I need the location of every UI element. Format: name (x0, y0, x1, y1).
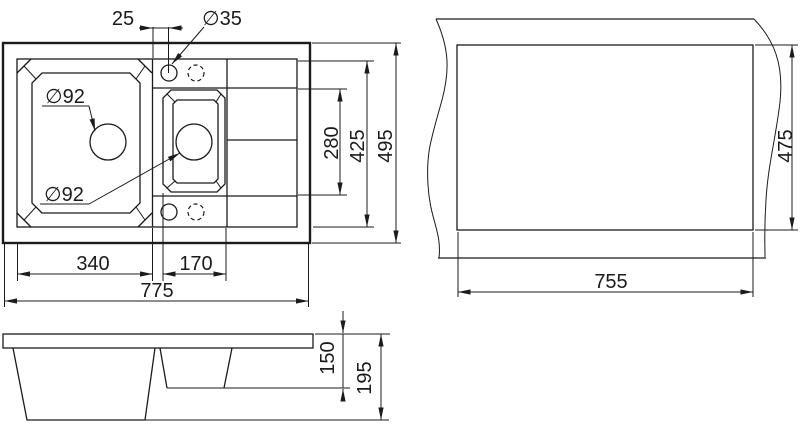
plan-view (3, 43, 310, 243)
dim-total-depth: 195 (354, 361, 376, 394)
small-drain-hole (176, 124, 212, 160)
main-bowl (17, 59, 152, 227)
dim-bowl-opening-height: 280 (321, 126, 343, 159)
main-bowl-profile (13, 348, 155, 420)
dim-main-drain-dia: ∅92 (45, 86, 85, 108)
break-line-left (428, 19, 448, 258)
dim-total-height: 495 (375, 129, 397, 162)
dim-total-width: 775 (140, 280, 173, 302)
cutout-view (428, 19, 781, 258)
sink-technical-drawing: 25 ∅35 ∅92 ∅92 340 170 775 280 (0, 0, 800, 424)
optional-hole-bottom (188, 204, 204, 220)
small-bowl-profile-left (160, 348, 167, 388)
drawing-canvas: 25 ∅35 ∅92 ∅92 340 170 775 280 (0, 0, 800, 424)
dim-main-bowl-width: 340 (76, 253, 109, 275)
dim-faucet-hole-dia: ∅35 (202, 8, 242, 30)
dim-cutout-height: 475 (775, 129, 797, 162)
dim-small-bowl-depth: 150 (317, 341, 339, 374)
dim-faucet-offset: 25 (112, 8, 134, 30)
side-dimensions: 150 195 (145, 311, 390, 420)
small-bowl-rim (163, 90, 225, 192)
dim-small-drain-dia: ∅92 (44, 184, 84, 206)
dim-inner-height: 425 (347, 129, 369, 162)
small-bowl-bottom (173, 100, 218, 183)
cutout-dimensions: 755 475 (458, 45, 798, 297)
small-bowl-profile-right (224, 348, 232, 388)
small-bowl (163, 90, 225, 192)
dim-small-bowl-width: 170 (179, 253, 212, 275)
dim-cutout-width: 755 (594, 271, 627, 293)
main-drain-hole (90, 124, 126, 160)
optional-hole-top (188, 65, 204, 81)
cutout-rect (457, 45, 753, 230)
sink-rim-profile (3, 334, 313, 348)
side-view (3, 334, 350, 420)
